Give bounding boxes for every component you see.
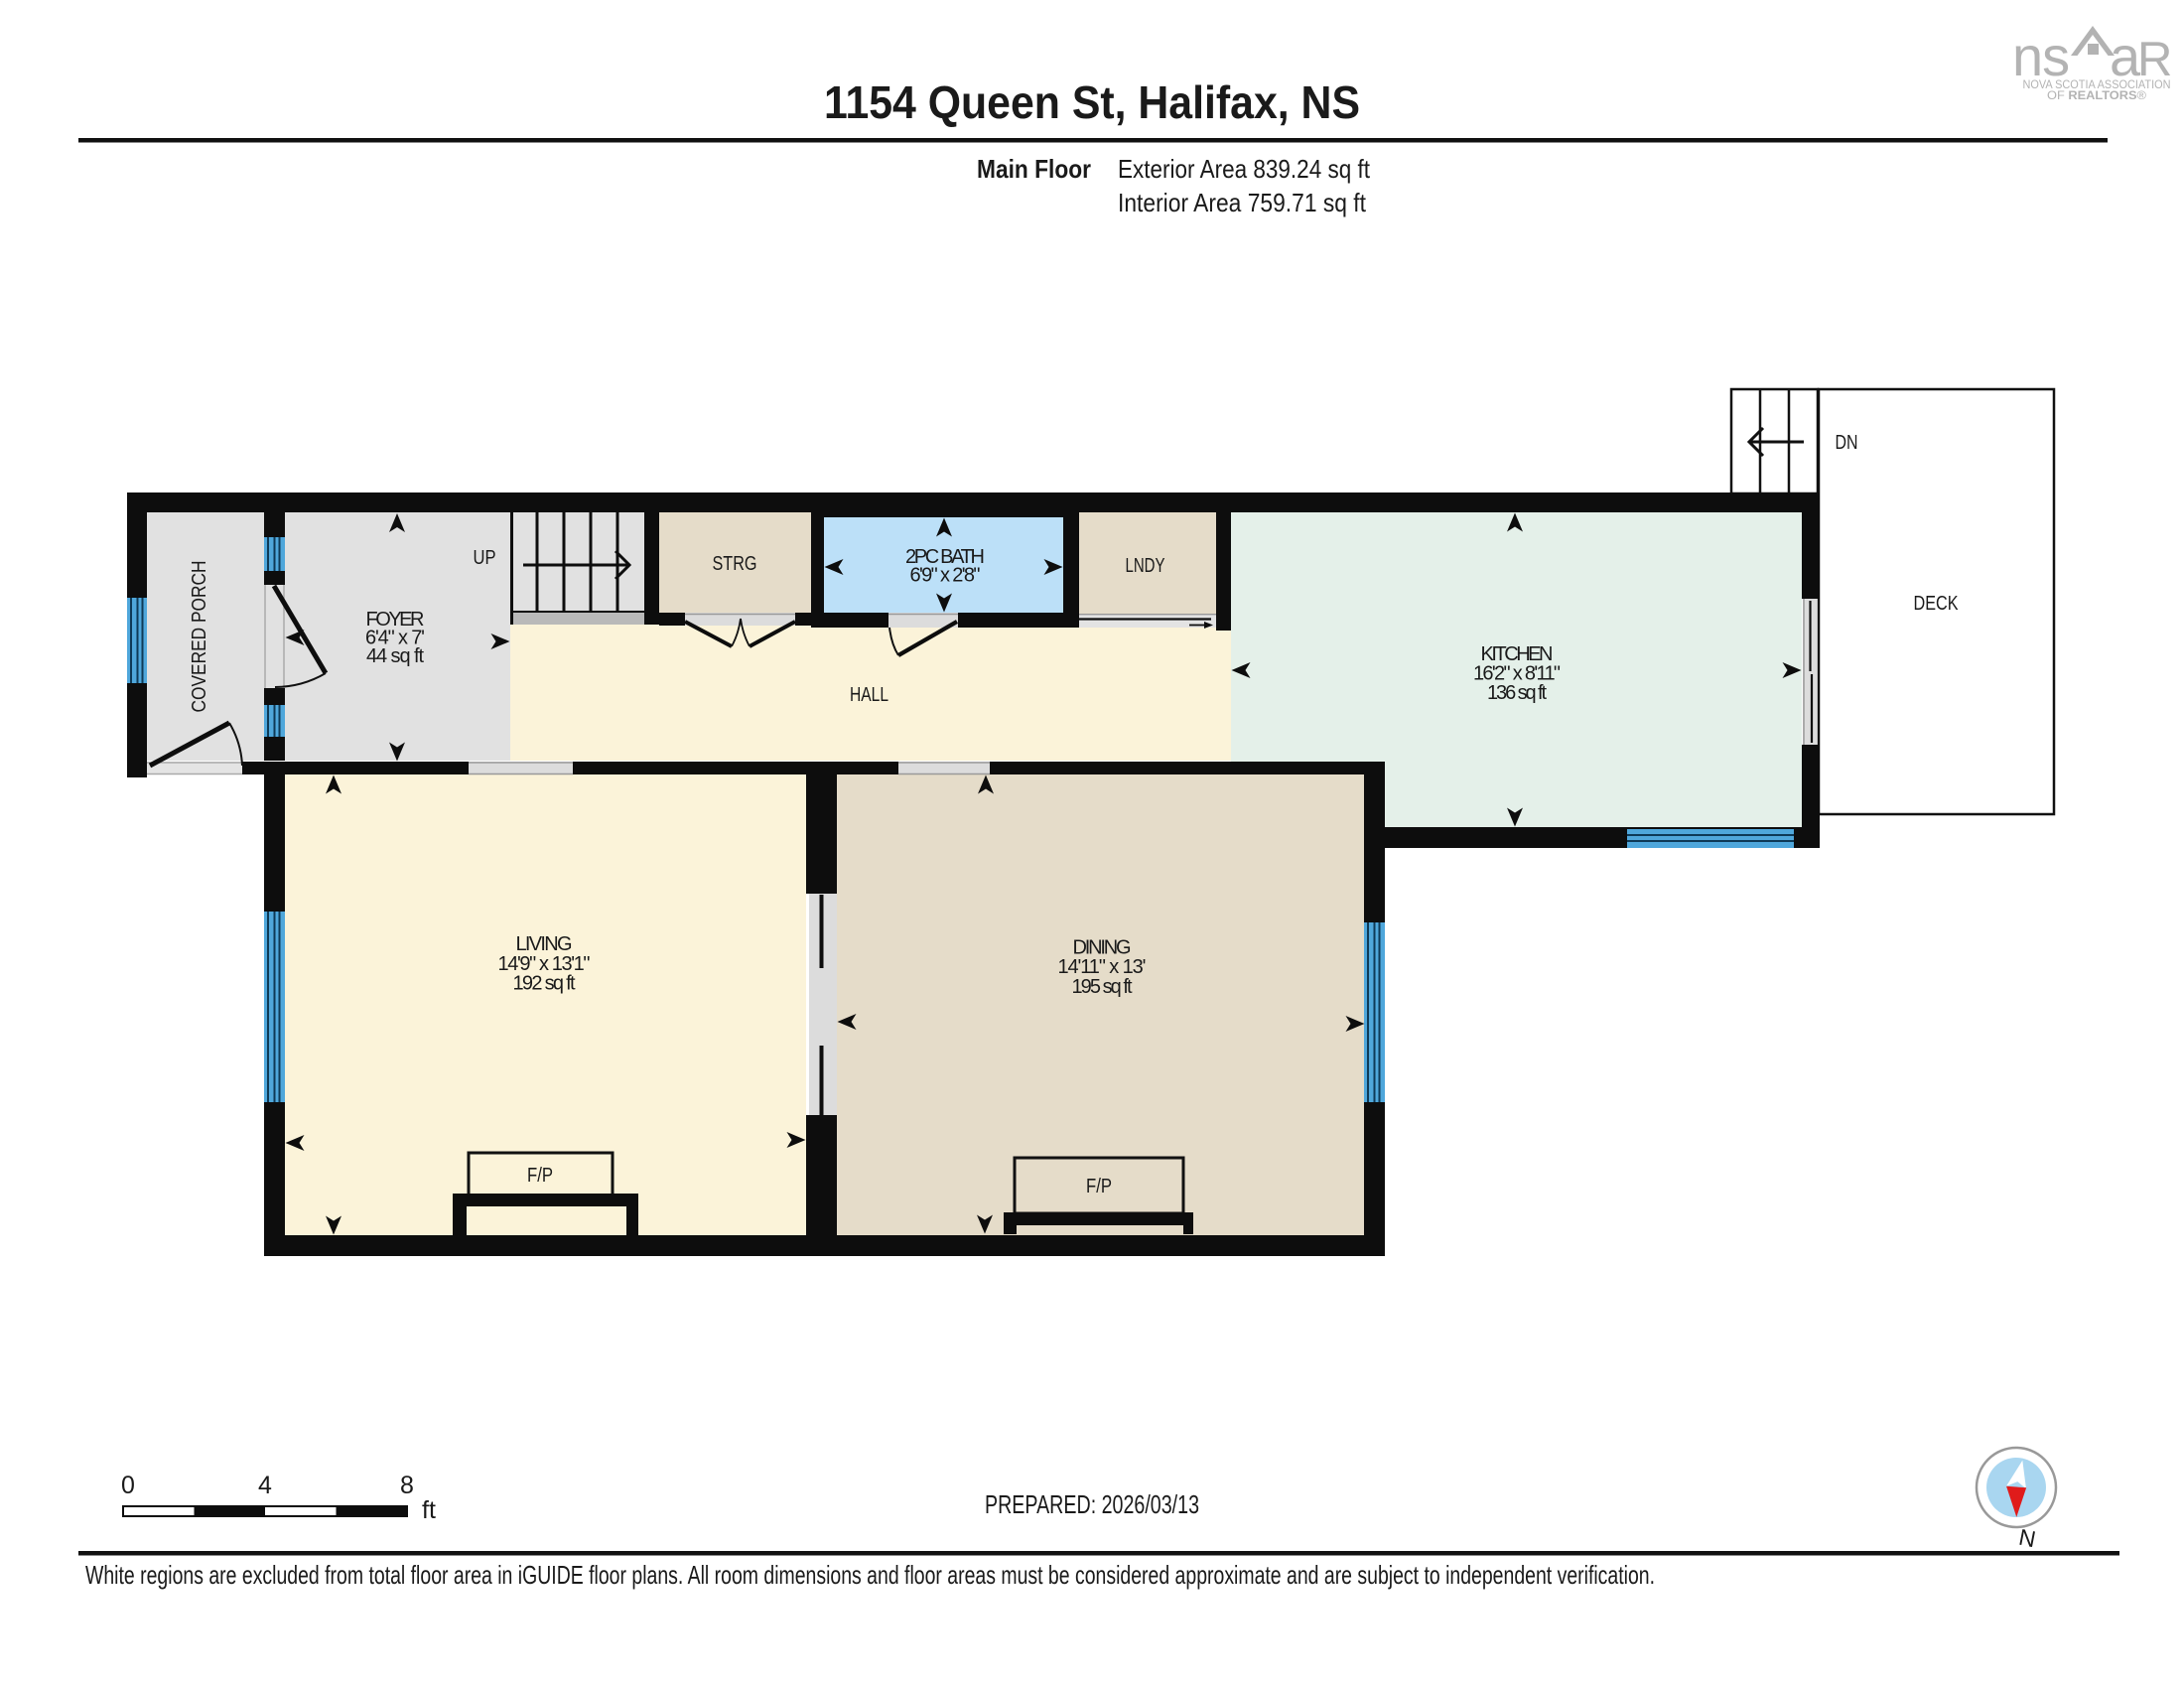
svg-text:R: R [2137,33,2172,86]
svg-text:UP: UP [474,547,496,569]
svg-text:F/P: F/P [527,1165,553,1187]
svg-text:HALL: HALL [850,684,888,706]
svg-text:44 sq ft: 44 sq ft [366,645,424,667]
svg-text:COVERED PORCH: COVERED PORCH [189,561,210,713]
svg-text:DN: DN [1836,432,1858,454]
svg-text:0: 0 [121,1472,135,1499]
svg-text:White regions are excluded fro: White regions are excluded from total fl… [85,1560,1655,1590]
svg-text:LNDY: LNDY [1126,555,1165,577]
svg-text:1154 Queen St, Halifax, NS: 1154 Queen St, Halifax, NS [824,76,1360,128]
svg-text:STRG: STRG [713,553,757,575]
svg-text:ft: ft [422,1496,436,1524]
svg-text:ns: ns [2012,25,2069,87]
svg-text:DECK: DECK [1914,593,1960,615]
svg-text:OF REALTORS®: OF REALTORS® [2047,90,2147,102]
svg-text:136 sq ft: 136 sq ft [1487,682,1547,704]
svg-text:F/P: F/P [1086,1176,1112,1197]
svg-text:LIVING: LIVING [516,933,573,955]
svg-text:Main Floor: Main Floor [977,154,1091,184]
svg-text:8: 8 [400,1472,414,1499]
svg-text:195 sq ft: 195 sq ft [1072,976,1133,998]
svg-text:14'11" x 13': 14'11" x 13' [1058,956,1147,978]
svg-text:192 sq ft: 192 sq ft [513,973,576,995]
svg-text:4: 4 [258,1472,272,1499]
svg-text:6'9" x 2'8": 6'9" x 2'8" [910,565,981,587]
svg-text:Interior Area 759.71 sq ft: Interior Area 759.71 sq ft [1118,188,1367,217]
svg-text:PREPARED: 2026/03/13: PREPARED: 2026/03/13 [985,1489,1199,1519]
svg-text:Exterior Area 839.24 sq ft: Exterior Area 839.24 sq ft [1118,154,1371,184]
